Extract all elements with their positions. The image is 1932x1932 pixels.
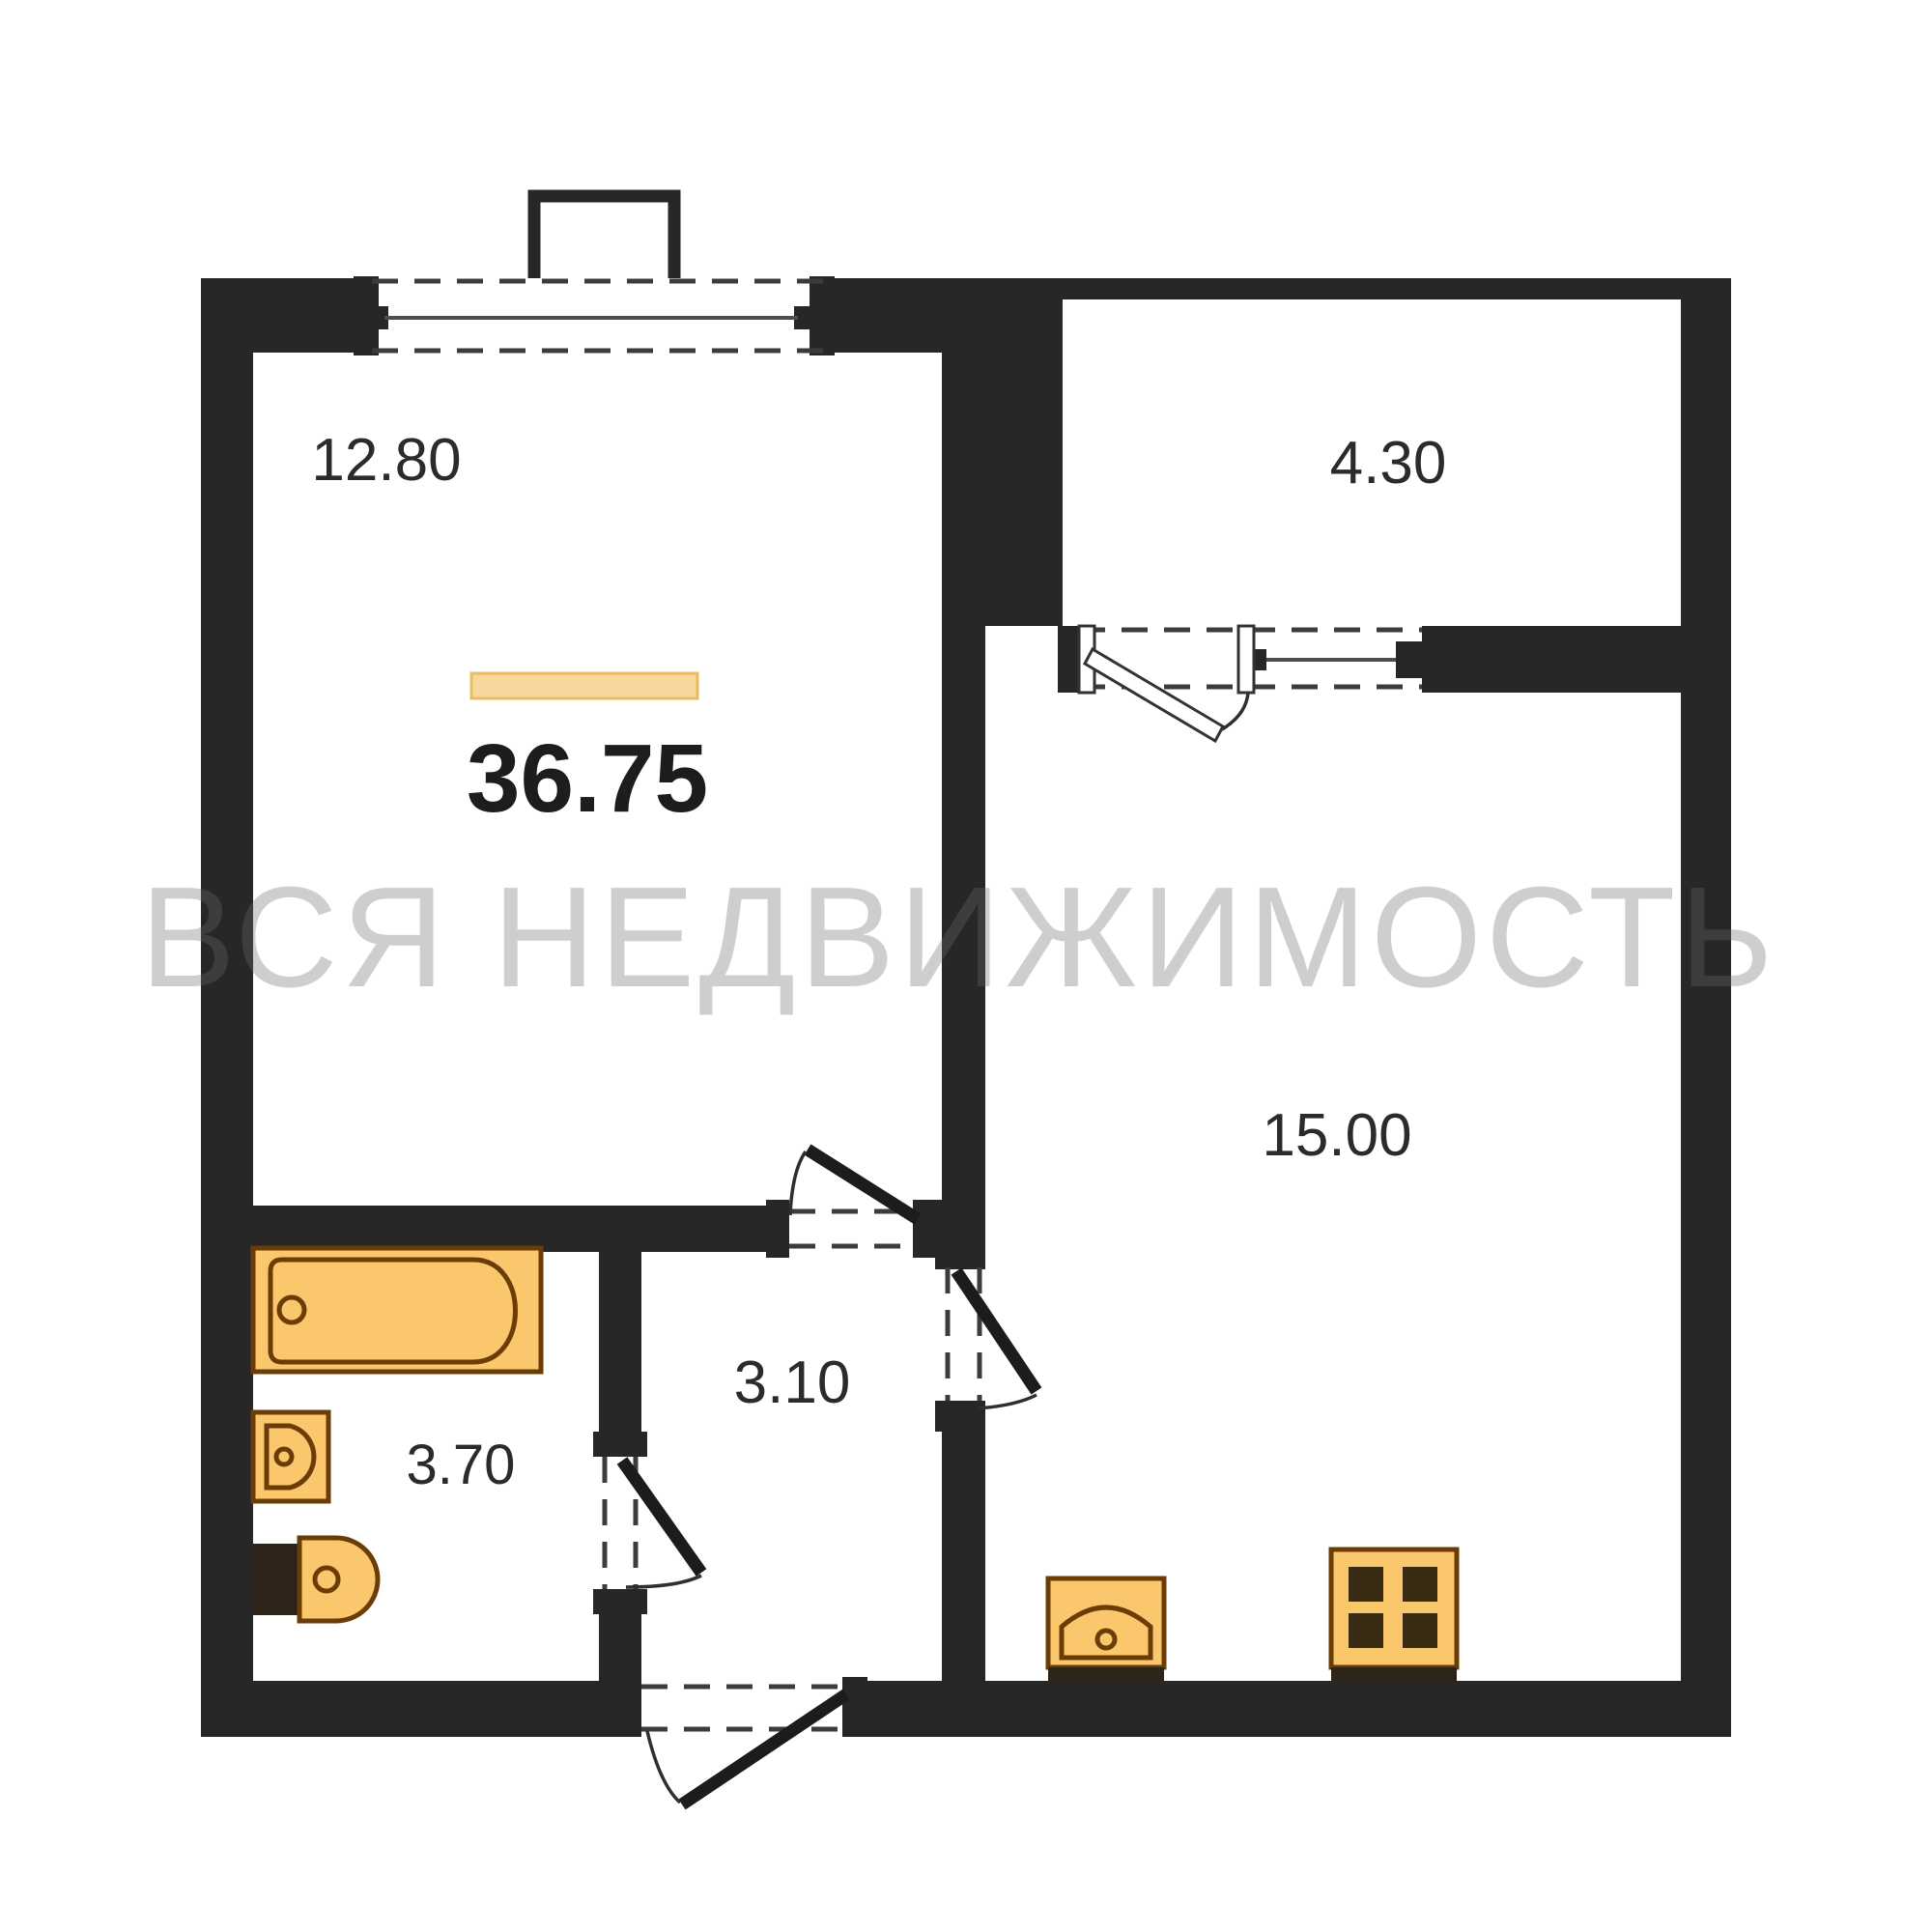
living-room-window bbox=[372, 196, 833, 351]
door-entrance bbox=[641, 1687, 846, 1804]
wall-outer-left bbox=[201, 278, 253, 1737]
room-label-bathroom: 3.70 bbox=[407, 1434, 516, 1496]
stove-base bbox=[1331, 1667, 1457, 1683]
room-label-hallway: 3.10 bbox=[734, 1350, 851, 1416]
living-door-leaf bbox=[808, 1150, 918, 1219]
wall-top-left bbox=[201, 278, 372, 353]
loggia-door-arc bbox=[1222, 693, 1248, 729]
wall-bathroom-hall-upper bbox=[599, 1252, 641, 1432]
kitchen-door-leaf bbox=[956, 1271, 1037, 1391]
balcony-outline bbox=[534, 196, 674, 278]
kitchen-door-jamb-top bbox=[935, 1236, 985, 1269]
door-living-room bbox=[789, 1150, 918, 1246]
stove-burner bbox=[1403, 1567, 1437, 1602]
wall-top-right bbox=[1063, 278, 1731, 299]
total-area-bar bbox=[471, 673, 697, 698]
floor-plan-canvas: 36.75 12.80 4.30 15.00 3.10 3.70 ВСЯ НЕД… bbox=[0, 0, 1932, 1932]
bath-door-jamb-top bbox=[593, 1432, 647, 1457]
total-area-label: 36.75 bbox=[467, 724, 708, 833]
kitchen-door-jamb-bottom bbox=[935, 1401, 985, 1432]
window-jamb-right bbox=[810, 276, 835, 355]
toilet-tank bbox=[253, 1544, 299, 1615]
loggia-band bbox=[1079, 626, 1422, 741]
living-door-arc bbox=[790, 1151, 806, 1215]
loggia-door-post-right bbox=[1238, 626, 1254, 693]
loggia-door-leaf bbox=[1085, 649, 1223, 741]
door-bathroom bbox=[605, 1457, 701, 1589]
wall-outer-right bbox=[1681, 278, 1731, 1737]
entry-door-jamb bbox=[842, 1677, 867, 1737]
door-kitchen bbox=[948, 1267, 1037, 1408]
wall-top-mid bbox=[833, 278, 942, 353]
living-door-jamb-left bbox=[766, 1200, 789, 1258]
walls bbox=[201, 278, 1731, 1737]
stove-burner bbox=[1403, 1613, 1437, 1648]
wall-loggia-band-solid bbox=[1422, 626, 1681, 693]
kitchen-door-arc bbox=[978, 1395, 1037, 1408]
loggia-window-jamb-right bbox=[1396, 641, 1422, 678]
kitchen-sink-icon bbox=[1048, 1578, 1164, 1683]
wall-bathroom-hall-lower bbox=[599, 1613, 641, 1681]
room-label-kitchen: 15.00 bbox=[1262, 1102, 1411, 1169]
bath-door-arc bbox=[626, 1576, 701, 1587]
wall-outer-bottom-right bbox=[842, 1681, 1731, 1737]
jambs bbox=[354, 276, 1422, 1737]
stove-icon bbox=[1331, 1549, 1457, 1683]
entry-door-leaf bbox=[682, 1694, 846, 1804]
bathtub-icon bbox=[253, 1248, 541, 1372]
washbasin-icon bbox=[253, 1412, 328, 1501]
room-label-living: 12.80 bbox=[311, 427, 461, 494]
stove-burner bbox=[1349, 1567, 1383, 1602]
room-label-loggia: 4.30 bbox=[1330, 430, 1447, 497]
kitchen-sink-base bbox=[1048, 1667, 1164, 1683]
toilet-icon bbox=[253, 1538, 378, 1621]
wall-interior-vertical-lower bbox=[942, 1401, 985, 1681]
wall-interior-vertical-upper bbox=[942, 278, 985, 1267]
wall-block-stub bbox=[1058, 626, 1079, 693]
floor-plan-drawing: 36.75 12.80 4.30 15.00 3.10 3.70 bbox=[0, 0, 1932, 1932]
wall-bathroom-hall-top bbox=[201, 1206, 787, 1252]
bath-door-jamb-bottom bbox=[593, 1589, 647, 1614]
entry-door-arc bbox=[647, 1731, 680, 1803]
stove-burner bbox=[1349, 1613, 1383, 1648]
wall-outer-bottom-left bbox=[201, 1681, 641, 1737]
